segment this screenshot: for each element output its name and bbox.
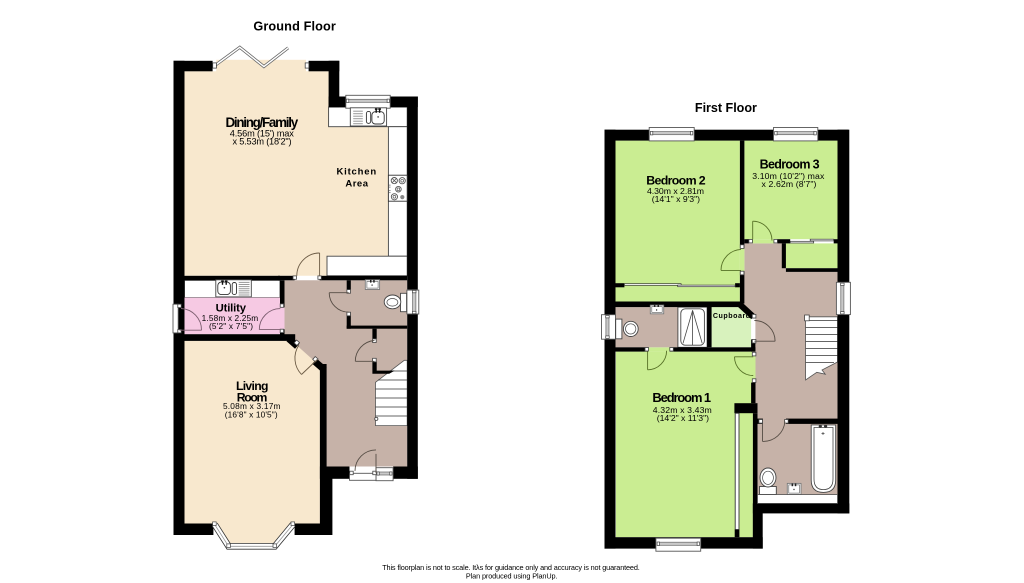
svg-text:(14'1" x 9'3"): (14'1" x 9'3") (652, 194, 700, 204)
svg-text:Area: Area (345, 179, 368, 190)
svg-text:Cupboard: Cupboard (713, 312, 750, 320)
svg-text:(16'8" x 10'5"): (16'8" x 10'5") (225, 409, 278, 419)
svg-text:Bedroom 3: Bedroom 3 (760, 157, 820, 171)
svg-text:Kitchen: Kitchen (336, 166, 376, 177)
svg-text:x 2.62m (8'7"): x 2.62m (8'7") (762, 179, 817, 189)
svg-text:First Floor: First Floor (695, 101, 757, 115)
svg-text:Ground Floor: Ground Floor (253, 20, 336, 34)
svg-text:(14'2" x 11'3"): (14'2" x 11'3") (657, 413, 709, 423)
svg-text:Plan produced using PlanUp.: Plan produced using PlanUp. (466, 571, 558, 580)
svg-text:Bedroom 1: Bedroom 1 (652, 390, 711, 405)
svg-text:x 5.53m (18'2"): x 5.53m (18'2") (233, 137, 292, 147)
svg-text:(5'2" x 7'5"): (5'2" x 7'5") (209, 321, 253, 331)
